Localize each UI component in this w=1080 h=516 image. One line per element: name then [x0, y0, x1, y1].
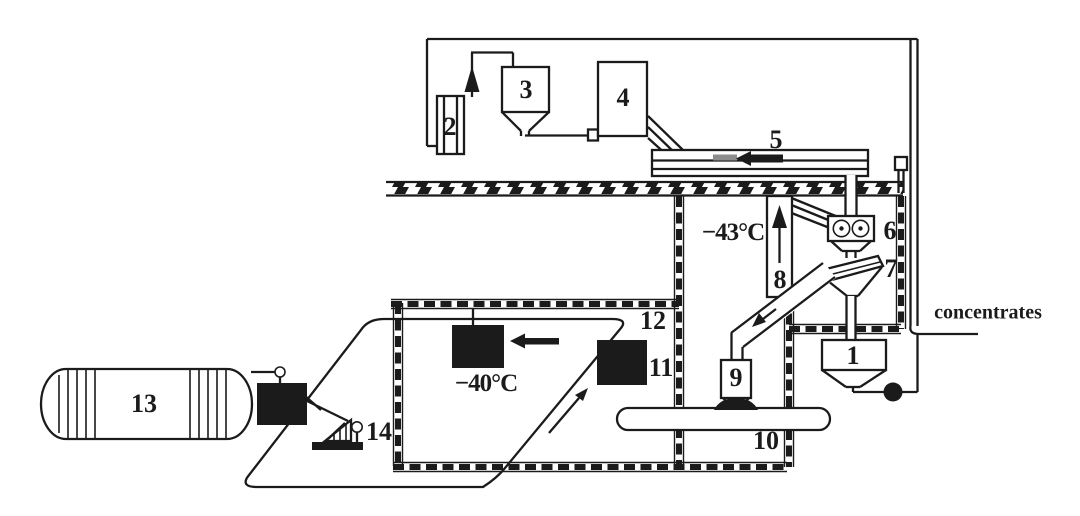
diagram-canvas — [0, 0, 1080, 516]
floor-slab — [386, 182, 903, 196]
pump — [884, 383, 903, 402]
crusher-feed-pipe — [845, 175, 858, 216]
label-10: 10 — [753, 426, 779, 456]
roller-crusher-6 — [828, 216, 874, 258]
conveyor-10 — [617, 408, 830, 430]
label-9: 9 — [730, 363, 743, 393]
label-14: 14 — [366, 417, 392, 447]
label-1: 1 — [847, 341, 860, 371]
gauge-14 — [305, 400, 363, 450]
valve — [275, 367, 285, 377]
label-4: 4 — [617, 83, 630, 113]
belt-flow-shade — [713, 155, 737, 161]
concentrates-callout-line — [910, 326, 978, 334]
label-6: 6 — [884, 216, 897, 246]
label-7: 7 — [885, 254, 898, 284]
left-flow-arrow — [510, 334, 525, 349]
temperature-left-chamber: −40°C — [455, 370, 517, 398]
label-5: 5 — [770, 125, 783, 155]
label-13: 13 — [131, 389, 157, 419]
tank-13 — [41, 367, 307, 439]
material-pile — [714, 398, 758, 410]
unit-11 — [597, 340, 647, 385]
label-12: 12 — [640, 306, 666, 336]
process-flow-diagram: 1 2 3 4 5 6 7 8 9 10 11 12 13 14 −43°C −… — [0, 0, 1080, 516]
label-3: 3 — [520, 75, 533, 105]
concentrates-label: concentrates — [934, 302, 1042, 325]
hopper-3 — [502, 67, 598, 141]
concentrate-pipe — [846, 296, 857, 341]
label-8: 8 — [774, 265, 787, 295]
label-11: 11 — [649, 353, 674, 383]
valve-unit — [257, 383, 307, 425]
unit-4 — [598, 62, 685, 156]
label-2: 2 — [444, 112, 457, 142]
up-flow-arrow — [465, 66, 480, 92]
temperature-right-chamber: −43°C — [702, 219, 764, 247]
